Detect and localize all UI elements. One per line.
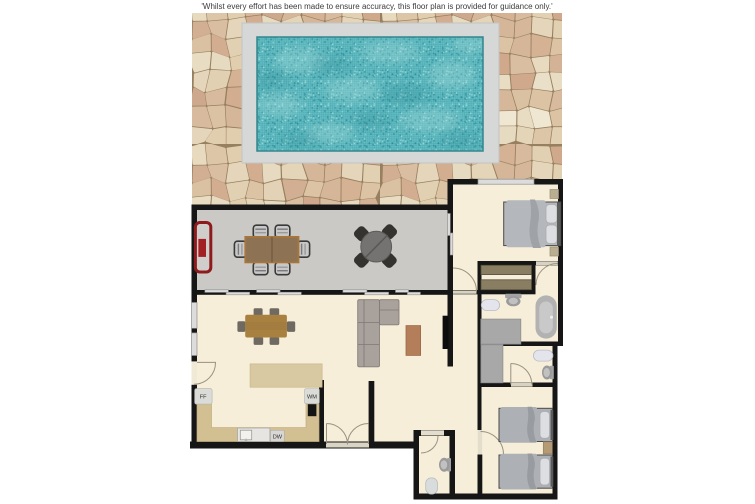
svg-text:DW: DW [273, 434, 283, 440]
svg-text:'Whilst every effort has been: 'Whilst every effort has been made to en… [201, 2, 553, 11]
svg-text:FF: FF [200, 395, 207, 401]
svg-text:WM: WM [307, 395, 317, 401]
